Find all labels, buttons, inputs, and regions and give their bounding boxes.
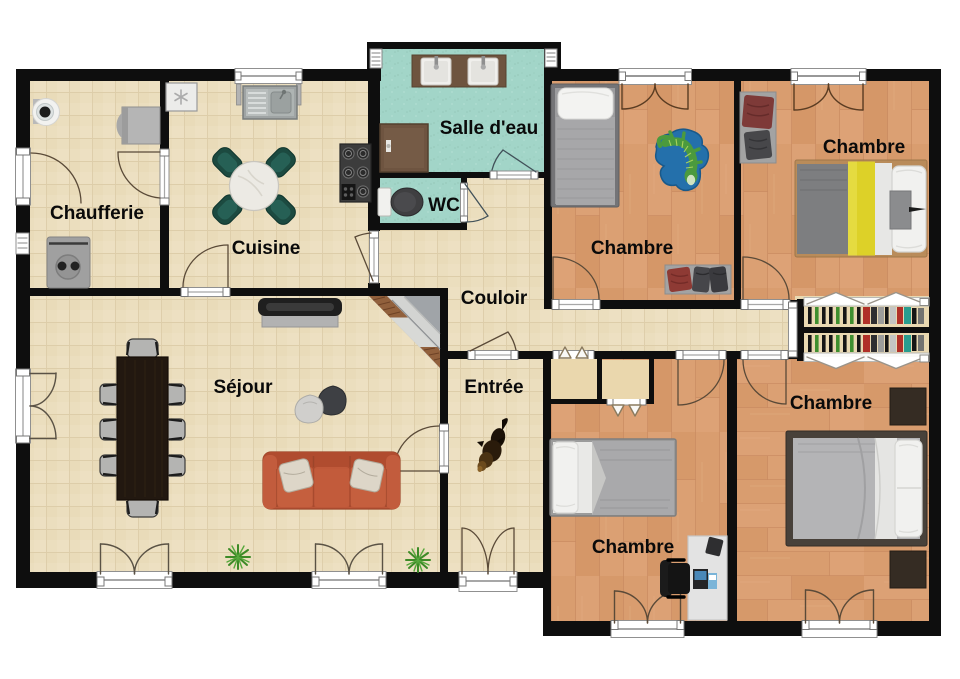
svg-text:Chambre: Chambre <box>591 238 673 259</box>
svg-text:Chaufferie: Chaufferie <box>50 203 144 224</box>
svg-text:Cuisine: Cuisine <box>232 238 301 259</box>
svg-text:Entrée: Entrée <box>464 377 523 398</box>
svg-text:WC: WC <box>428 195 460 216</box>
svg-text:Chambre: Chambre <box>790 393 872 414</box>
svg-text:Chambre: Chambre <box>823 137 905 158</box>
svg-text:Couloir: Couloir <box>461 288 528 309</box>
svg-text:Salle d'eau: Salle d'eau <box>440 118 539 139</box>
svg-text:Chambre: Chambre <box>592 537 674 558</box>
svg-text:Séjour: Séjour <box>213 377 273 398</box>
